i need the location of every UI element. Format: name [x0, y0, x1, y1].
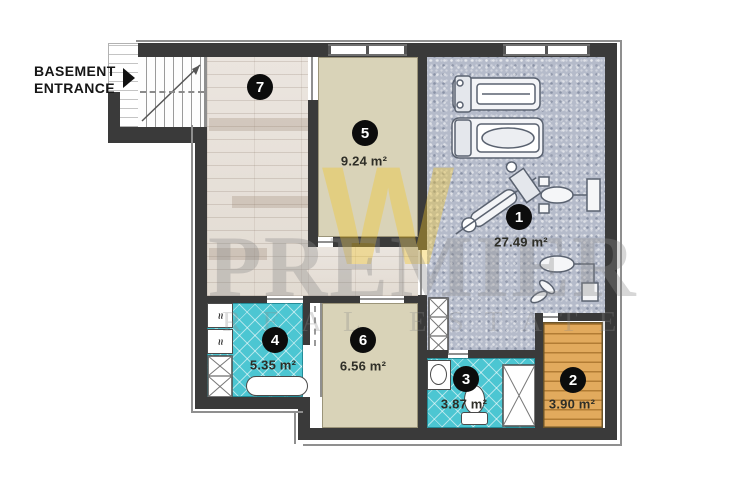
wall — [108, 92, 120, 143]
outer-boundary-line — [294, 411, 296, 444]
room-5-floor — [318, 57, 418, 237]
corridor-dash-line — [314, 306, 316, 346]
wall — [195, 296, 267, 303]
basement-entrance-line1: BASEMENT — [34, 63, 116, 80]
floor-plank-accent — [209, 248, 267, 260]
wall — [418, 350, 448, 358]
door-opening — [311, 57, 313, 100]
door-opening — [448, 353, 468, 355]
room-badge-5: 5 — [352, 120, 378, 146]
multi-gym-machine-icon — [440, 155, 545, 246]
wall — [605, 43, 617, 440]
room-badge-6: 6 — [350, 327, 376, 353]
washer-glyph: ≈ — [214, 338, 226, 344]
washer-glyph: ≈ — [214, 312, 226, 318]
wall — [418, 295, 427, 428]
room-area-label-3: 3.87 m² — [441, 397, 487, 412]
washing-machine-icon: ≈ — [207, 303, 233, 328]
window-mark — [587, 46, 590, 54]
treadmill-icon — [452, 118, 543, 158]
staircase — [138, 57, 207, 127]
wall — [333, 237, 427, 247]
window-mark — [328, 46, 331, 54]
door-opening — [420, 250, 422, 295]
floor-plank-accent — [232, 196, 308, 208]
outer-boundary-line — [303, 444, 622, 446]
room-area-label-4: 5.35 m² — [250, 358, 296, 373]
room-area-label-5: 9.24 m² — [341, 154, 387, 169]
wall — [195, 397, 310, 409]
window-mark — [503, 46, 506, 54]
treadmill-icon — [453, 76, 540, 112]
door-opening — [543, 316, 558, 318]
floor-plank-accent — [209, 118, 308, 131]
basement-floor-plan: ≈ ≈ — [0, 0, 740, 482]
room-area-label-2: 3.90 m² — [549, 397, 595, 412]
room-badge-7: 7 — [247, 74, 273, 100]
door-opening — [267, 298, 303, 300]
room6-door-frame — [320, 303, 322, 397]
window-mark — [366, 46, 369, 54]
wall — [195, 127, 207, 409]
window — [503, 44, 590, 56]
window-mark — [545, 46, 548, 54]
stair-hall-separator — [204, 57, 207, 127]
hallway-corridor-floor — [308, 247, 418, 296]
door-opening — [360, 298, 404, 300]
shower-cabin-icon — [502, 364, 536, 427]
weight-machine-icon — [539, 177, 600, 213]
room-badge-4: 4 — [262, 327, 288, 353]
room-area-label-1: 27.49 m² — [494, 235, 548, 250]
exercise-bike-icon — [529, 256, 598, 305]
bathtub-icon — [246, 376, 308, 396]
window-mark — [404, 46, 407, 54]
room-badge-1: 1 — [506, 204, 532, 230]
cabinet-icon — [207, 355, 233, 398]
wall — [418, 57, 427, 250]
washing-machine-icon: ≈ — [207, 329, 233, 354]
outer-boundary-line — [193, 411, 303, 413]
wall — [303, 296, 310, 345]
sink-icon — [430, 364, 447, 385]
wall — [308, 100, 318, 247]
room-badge-3: 3 — [453, 366, 479, 392]
door-opening — [318, 241, 333, 243]
room-badge-2: 2 — [560, 367, 586, 393]
wall — [558, 313, 605, 321]
outer-boundary-line — [620, 40, 622, 446]
stair-cut-line — [140, 91, 204, 93]
wall — [303, 296, 360, 303]
toilet-tank-icon — [461, 412, 488, 425]
outer-boundary-line — [136, 40, 622, 42]
wall — [305, 428, 617, 440]
gym-equipment — [427, 57, 605, 307]
wall — [535, 313, 543, 428]
room-area-label-6: 6.56 m² — [340, 359, 386, 374]
outer-boundary-line — [191, 125, 193, 413]
window — [328, 44, 407, 56]
entrance-arrow-icon — [123, 68, 135, 88]
basement-entrance-line2: ENTRANCE — [34, 80, 116, 97]
basement-entrance-label: BASEMENT ENTRANCE — [34, 63, 116, 97]
wall — [404, 296, 427, 303]
wall — [468, 350, 540, 358]
